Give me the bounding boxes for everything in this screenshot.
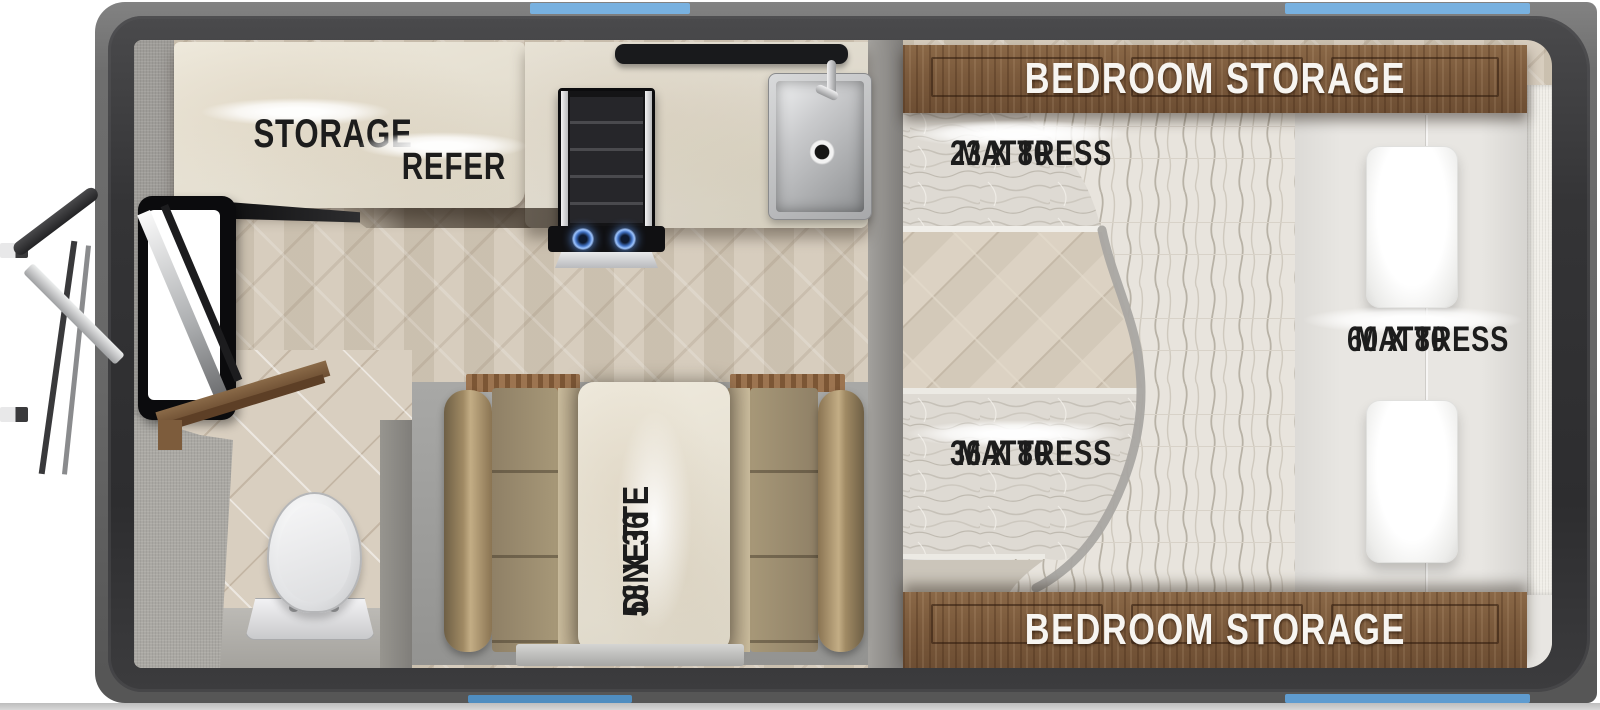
- entry-step: [0, 407, 28, 422]
- dinette-bench-right: [750, 388, 818, 652]
- bed-soft-goods: [903, 108, 1300, 595]
- burner-icon: [572, 228, 594, 250]
- window-bottom-right: [1285, 694, 1530, 703]
- window-bottom-center: [468, 695, 632, 703]
- dinette-text: DINETTE: [616, 485, 656, 614]
- cooktop-tray: [555, 252, 658, 268]
- under-counter-shadow: [340, 208, 560, 228]
- bedroom-divider-wall: [868, 40, 903, 668]
- mattress-23x80-label: 23 X 80 MATTRESS: [906, 120, 1126, 148]
- dinette-seat-edge: [728, 388, 750, 652]
- toilet-lid: [278, 503, 351, 602]
- dinette-side-wall: [380, 420, 412, 668]
- window-top-center: [530, 3, 690, 14]
- pillow: [1366, 400, 1458, 563]
- bathroom-shelf-support: [158, 420, 182, 450]
- dinette-bench-left: [492, 388, 558, 652]
- refrigerator: [558, 88, 655, 232]
- bedroom-storage-cabinet-top: BEDROOM STORAGE: [903, 45, 1527, 113]
- bedroom-front-wall: [1527, 85, 1552, 595]
- dinette-label: 58 X 36 DINETTE: [616, 410, 692, 630]
- bathroom-wall: [134, 410, 234, 668]
- refrigerator-rail: [561, 91, 568, 229]
- bedroom-storage-cabinet-bottom: BEDROOM STORAGE: [903, 592, 1527, 668]
- mattress-36x80-label: 36 X 80 MATTRESS: [906, 420, 1126, 448]
- dinette-bench-left-bolster: [444, 390, 492, 652]
- refer-label: REFER: [357, 132, 527, 160]
- cooktop: [548, 226, 665, 252]
- bedroom-storage-label-bottom: BEDROOM STORAGE: [903, 592, 1527, 668]
- refrigerator-racks: [570, 97, 643, 223]
- ground-shadow: [0, 703, 1600, 710]
- mattress-60x80-label: 60 X 80 MATTRESS: [1303, 306, 1523, 334]
- refrigerator-rail: [645, 91, 652, 229]
- interior-floor: 58 X 36 DINETTE: [134, 40, 1552, 668]
- dinette-bench-right-bolster: [818, 390, 864, 652]
- window-top-right: [1285, 3, 1530, 14]
- pillow: [1366, 146, 1458, 308]
- dinette-step: [516, 644, 744, 666]
- toilet: [267, 492, 362, 613]
- burner-icon: [614, 228, 636, 250]
- overhead-shelf: [615, 44, 848, 64]
- storage-label: STORAGE: [201, 98, 391, 126]
- floorplan-canvas: 58 X 36 DINETTE: [0, 0, 1600, 710]
- bedroom-storage-label-top: BEDROOM STORAGE: [903, 45, 1527, 113]
- sink-drain-icon: [809, 139, 835, 165]
- dinette-seat-edge: [558, 388, 580, 652]
